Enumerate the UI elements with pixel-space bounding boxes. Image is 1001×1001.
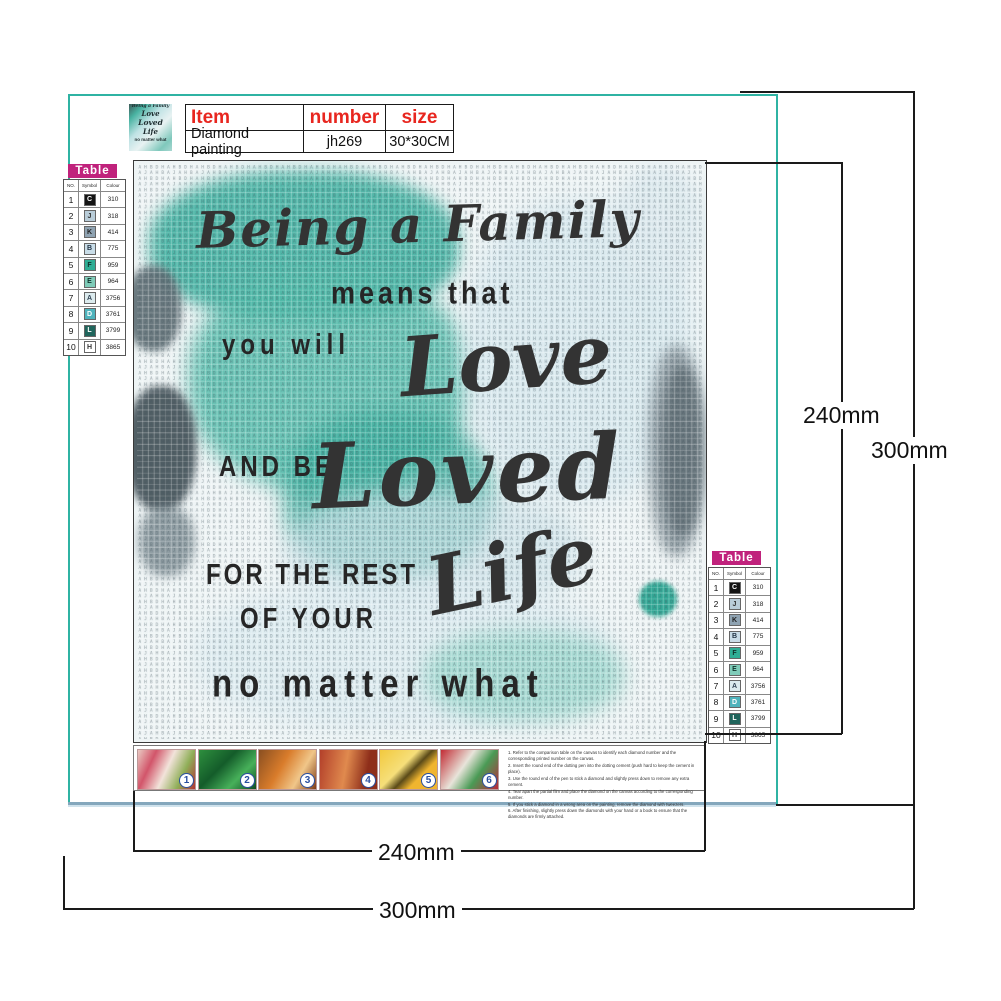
instruction-line: 3. Use the round end of the pen to stick…	[508, 776, 702, 789]
col-colour: Colour	[746, 568, 770, 579]
colour-code: 318	[746, 596, 770, 611]
row-number: 8	[709, 695, 724, 710]
colour-code: 3761	[746, 695, 770, 710]
row-number: 10	[64, 340, 79, 355]
step-photo-4: 4	[319, 749, 378, 790]
instruction-line: 6. After finishing, slightly press down …	[508, 808, 702, 821]
dim-label-inner-height: 240mm	[797, 402, 886, 429]
symbol-chip: C	[84, 194, 96, 206]
step-number: 4	[361, 773, 376, 788]
dim-line-inner-height	[841, 162, 843, 734]
step-photo-2: 2	[198, 749, 257, 790]
colour-code: 775	[746, 629, 770, 644]
dim-line-outer-width	[63, 908, 914, 910]
colour-code: 959	[101, 258, 125, 273]
quote-line-7: FOR THE REST	[206, 559, 418, 592]
color-table-row: 3 K 414	[709, 613, 770, 629]
symbol-cell: D	[724, 695, 746, 710]
color-table-header: NO. Symbol Colour	[709, 568, 770, 580]
color-table-right: NO. Symbol Colour 1 C 310 2 J 318 3	[708, 567, 771, 744]
symbol-chip: H	[729, 729, 741, 741]
colour-code: 310	[746, 580, 770, 595]
symbol-chip: F	[84, 259, 96, 271]
color-table-row: 7 A 3756	[64, 290, 125, 306]
symbol-chip: L	[729, 713, 741, 725]
thumb-text: Life	[129, 128, 172, 137]
product-spec-sheet: Being a Family Love Loved Life no matter…	[0, 0, 1001, 1001]
symbol-chip: B	[729, 631, 741, 643]
quote-line-1: Being a Family	[195, 189, 641, 260]
step-number: 3	[300, 773, 315, 788]
row-number: 7	[709, 678, 724, 693]
dim-tick-inner-left	[133, 791, 135, 851]
product-thumbnail: Being a Family Love Loved Life no matter…	[129, 104, 172, 151]
dim-tick-inner-bottom	[705, 733, 842, 735]
step-number: 1	[179, 773, 194, 788]
colour-code: 775	[101, 241, 125, 256]
row-number: 1	[709, 580, 724, 595]
instruction-line: 2. Insert the round end of the dotting p…	[508, 763, 702, 776]
colour-code: 964	[101, 274, 125, 289]
symbol-chip: D	[729, 696, 741, 708]
instruction-strip: 1 2 3 4 5 6 1. Refer to the comparison t…	[133, 745, 705, 791]
color-table-left: NO. Symbol Colour 1 C 310 2 J 318 3	[63, 179, 126, 356]
row-number: 5	[709, 646, 724, 661]
step-number: 6	[482, 773, 497, 788]
row-number: 4	[64, 241, 79, 256]
colour-code: 414	[101, 225, 125, 240]
col-symbol: Symbol	[724, 568, 746, 579]
col-colour: Colour	[101, 180, 125, 191]
color-table-header: NO. Symbol Colour	[64, 180, 125, 192]
symbol-chip: A	[729, 680, 741, 692]
colour-code: 964	[746, 662, 770, 677]
item-spec-table: Item number size Diamond painting jh269 …	[185, 104, 454, 153]
colour-code: 3799	[101, 323, 125, 338]
row-number: 3	[64, 225, 79, 240]
color-table-title-left: Table	[68, 164, 117, 178]
symbol-cell: F	[79, 258, 101, 273]
color-table-row: 5 F 959	[709, 646, 770, 662]
colour-code: 3865	[746, 728, 770, 743]
symbol-cell: L	[724, 711, 746, 726]
size-header: size	[386, 105, 453, 131]
symbol-cell: J	[79, 208, 101, 223]
symbol-cell: H	[79, 340, 101, 355]
symbol-chip: K	[729, 614, 741, 626]
row-number: 2	[64, 208, 79, 223]
size-value: 30*30CM	[386, 131, 453, 152]
quote-line-3: you will	[222, 329, 350, 362]
symbol-cell: K	[724, 613, 746, 628]
row-number: 6	[709, 662, 724, 677]
color-table-row: 2 J 318	[709, 596, 770, 612]
quote-line-4: Love	[397, 306, 615, 417]
symbol-cell: A	[724, 678, 746, 693]
colour-code: 3756	[746, 678, 770, 693]
step-photo-6: 6	[440, 749, 499, 790]
symbol-cell: B	[724, 629, 746, 644]
symbol-cell: B	[79, 241, 101, 256]
color-table-row: 1 C 310	[709, 580, 770, 596]
colour-code: 3865	[101, 340, 125, 355]
symbol-cell: A	[79, 290, 101, 305]
color-table-row: 6 E 964	[709, 662, 770, 678]
dim-line-outer-height	[913, 91, 915, 909]
row-number: 5	[64, 258, 79, 273]
color-table-row: 9 L 3799	[709, 711, 770, 727]
colour-code: 310	[101, 192, 125, 207]
colour-code: 959	[746, 646, 770, 661]
color-table-row: 1 C 310	[64, 192, 125, 208]
row-number: 7	[64, 290, 79, 305]
symbol-cell: C	[724, 580, 746, 595]
item-value: Diamond painting	[186, 131, 304, 152]
thumb-text: Love	[129, 110, 172, 119]
color-table-title-right: Table	[712, 551, 761, 565]
thumb-text: no matter what	[129, 137, 172, 143]
color-table-row: 10 H 3865	[64, 340, 125, 355]
step-photo-1: 1	[137, 749, 196, 790]
frame-bottom-tick	[776, 804, 914, 806]
symbol-cell: L	[79, 323, 101, 338]
color-table-row: 2 J 318	[64, 208, 125, 224]
row-number: 3	[709, 613, 724, 628]
symbol-cell: J	[724, 596, 746, 611]
row-number: 4	[709, 629, 724, 644]
symbol-chip: E	[84, 276, 96, 288]
symbol-chip: H	[84, 341, 96, 353]
symbol-cell: E	[724, 662, 746, 677]
color-table-row: 4 B 775	[709, 629, 770, 645]
color-table-row: 9 L 3799	[64, 323, 125, 339]
number-header: number	[304, 105, 386, 131]
row-number: 10	[709, 728, 724, 743]
symbol-cell: K	[79, 225, 101, 240]
symbol-chip: K	[84, 226, 96, 238]
color-table-row: 10 H 3865	[709, 728, 770, 743]
step-number: 5	[421, 773, 436, 788]
symbol-cell: E	[79, 274, 101, 289]
item-table-value-row: Diamond painting jh269 30*30CM	[186, 131, 453, 152]
symbol-chip: A	[84, 292, 96, 304]
row-number: 9	[64, 323, 79, 338]
colour-code: 414	[746, 613, 770, 628]
symbol-cell: C	[79, 192, 101, 207]
colour-code: 3756	[101, 290, 125, 305]
dim-tick-inner-top	[705, 162, 842, 164]
symbol-chip: D	[84, 308, 96, 320]
row-number: 6	[64, 274, 79, 289]
col-no: NO.	[64, 180, 79, 191]
row-number: 1	[64, 192, 79, 207]
instruction-line: 1. Refer to the comparison table on the …	[508, 750, 702, 763]
symbol-chip: E	[729, 664, 741, 676]
symbol-chip: L	[84, 325, 96, 337]
colour-code: 3761	[101, 307, 125, 322]
symbol-cell: H	[724, 728, 746, 743]
dim-label-outer-width: 300mm	[373, 897, 462, 924]
row-number: 2	[709, 596, 724, 611]
row-number: 8	[64, 307, 79, 322]
symbol-chip: J	[84, 210, 96, 222]
dim-tick-outer-left	[63, 856, 65, 909]
step-photo-3: 3	[258, 749, 317, 790]
quote-line-8: OF YOUR	[240, 603, 377, 636]
color-table-row: 7 A 3756	[709, 678, 770, 694]
color-table-row: 6 E 964	[64, 274, 125, 290]
quote-line-10: no matter what	[212, 661, 545, 706]
dim-tick-outer-top	[740, 91, 914, 93]
symbol-chip: F	[729, 647, 741, 659]
color-table-row: 8 D 3761	[64, 307, 125, 323]
color-table-row: 5 F 959	[64, 258, 125, 274]
number-value: jh269	[304, 131, 386, 152]
step-number: 2	[240, 773, 255, 788]
diamond-painting-canvas: A H B D H A J A H B Being a Family means…	[133, 160, 707, 743]
dim-label-outer-height: 300mm	[865, 437, 954, 464]
instruction-text: 1. Refer to the comparison table on the …	[508, 750, 702, 821]
dim-tick-inner-right	[704, 741, 706, 851]
dim-label-inner-width: 240mm	[372, 839, 461, 866]
symbol-chip: C	[729, 582, 741, 594]
colour-code: 3799	[746, 711, 770, 726]
symbol-chip: B	[84, 243, 96, 255]
color-table-row: 3 K 414	[64, 225, 125, 241]
quote-line-2: means that	[331, 275, 514, 312]
color-table-row: 8 D 3761	[709, 695, 770, 711]
color-table-rows: 1 C 310 2 J 318 3 K 414 4	[64, 192, 125, 355]
colour-code: 318	[101, 208, 125, 223]
instruction-line: 5. If you stick a diamond in a wrong are…	[508, 802, 702, 808]
col-no: NO.	[709, 568, 724, 579]
row-number: 9	[709, 711, 724, 726]
symbol-cell: D	[79, 307, 101, 322]
color-table-rows: 1 C 310 2 J 318 3 K 414 4	[709, 580, 770, 743]
col-symbol: Symbol	[79, 180, 101, 191]
step-photo-5: 5	[379, 749, 438, 790]
symbol-chip: J	[729, 598, 741, 610]
instruction-line: 4. Tear apart the partial film and place…	[508, 789, 702, 802]
symbol-cell: F	[724, 646, 746, 661]
color-table-row: 4 B 775	[64, 241, 125, 257]
